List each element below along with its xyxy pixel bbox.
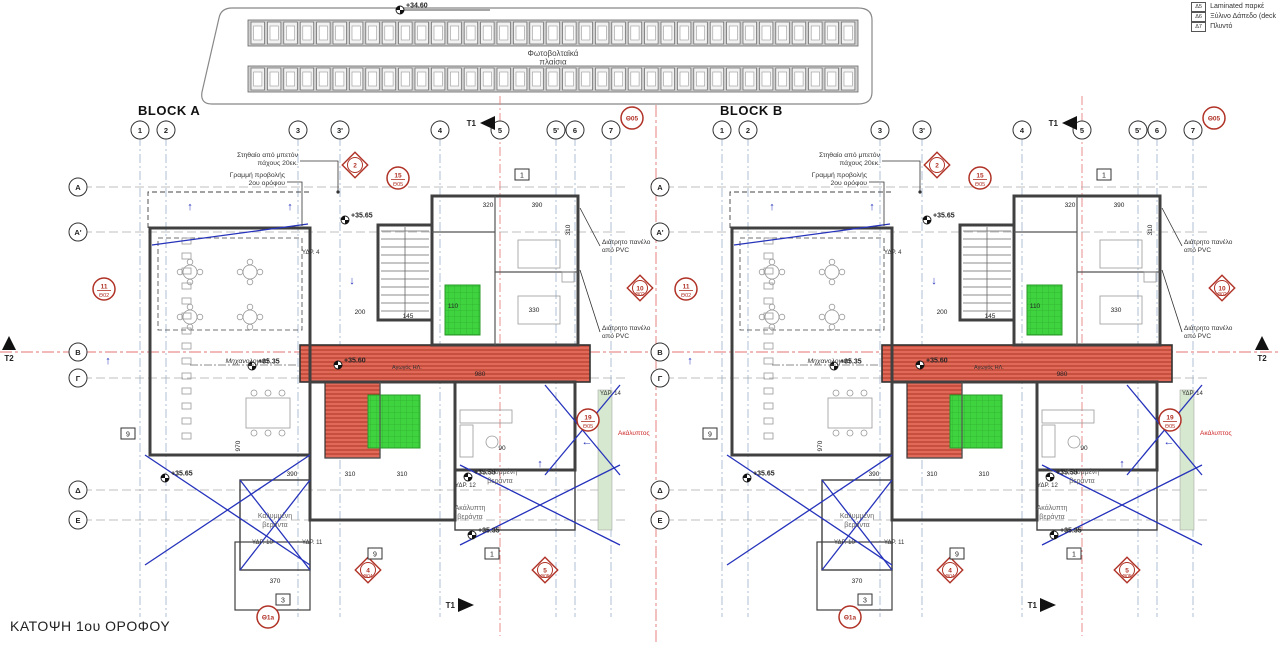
- svg-text:από PVC: από PVC: [1184, 246, 1211, 254]
- svg-text:Διάτρητο πανέλο: Διάτρητο πανέλο: [602, 238, 651, 246]
- section-marker-t2: T2: [2, 336, 16, 363]
- detail-marker: 19Θ05: [577, 409, 599, 431]
- drawing-title: ΚΑΤΟΨΗ 1ου ΟΡΟΦΟΥ: [10, 618, 170, 634]
- keynote-square: 1: [1097, 169, 1111, 180]
- svg-text:Στηθαίο από μπετόν: Στηθαίο από μπετόν: [819, 151, 881, 159]
- dimension-label: 320: [1065, 202, 1076, 209]
- grid-row-bubble: Γ: [69, 369, 87, 387]
- svg-text:5: 5: [1080, 126, 1084, 135]
- svg-text:Θ04: Θ04: [945, 574, 955, 580]
- grid-column-bubble: 4: [1013, 121, 1031, 139]
- svg-text:T1: T1: [1049, 119, 1059, 128]
- svg-text:←: ←: [582, 436, 593, 448]
- bathroom-upper: [1027, 285, 1062, 335]
- legend-code-box: Δ5: [1191, 2, 1206, 12]
- svg-text:1: 1: [490, 552, 494, 559]
- detail-marker: 11Θ02: [93, 278, 115, 300]
- grid-column-bubble: 6: [1148, 121, 1166, 139]
- dimension-label: 145: [403, 313, 414, 320]
- svg-text:3': 3': [919, 126, 925, 135]
- legend-code-box: Δ7: [1191, 22, 1206, 32]
- grid-row-bubble: Γ: [651, 369, 669, 387]
- svg-text:Θ02: Θ02: [635, 292, 645, 298]
- svg-text:Καλυμμένη: Καλυμμένη: [1065, 468, 1099, 476]
- svg-text:Μηχανολογικά: Μηχανολογικά: [225, 357, 269, 365]
- block-b: 1233'455'67AA'BΓΔE↑↑↑↑↓←15Θ05211Θ0210Θ02…: [651, 96, 1235, 636]
- dimension-label: 390: [287, 471, 298, 478]
- svg-text:3: 3: [878, 126, 882, 135]
- svg-text:βεράντα: βεράντα: [1039, 513, 1064, 521]
- dimension-label: 90: [1080, 445, 1088, 452]
- svg-text:+35.60: +35.60: [926, 358, 948, 365]
- svg-text:Θ1a: Θ1a: [262, 615, 275, 622]
- svg-text:Ακάλυπτος: Ακάλυπτος: [618, 429, 650, 437]
- svg-text:Θ04: Θ04: [363, 574, 373, 580]
- level-marker: +35.65: [341, 213, 373, 225]
- dimension-label: 330: [529, 307, 540, 314]
- svg-text:+34.60: +34.60: [406, 3, 428, 10]
- svg-text:3: 3: [863, 598, 867, 605]
- svg-text:+35.35: +35.35: [1060, 528, 1082, 535]
- svg-text:Δ: Δ: [657, 486, 663, 495]
- block-a-title: BLOCK A: [138, 103, 200, 118]
- legend-label: Πλυντό: [1210, 23, 1232, 30]
- bathroom-lower: [950, 395, 1002, 448]
- pv-array: Φωτοβολταϊκάπλαίσια+34.60: [202, 3, 872, 105]
- grid-row-bubble: E: [651, 511, 669, 529]
- svg-text:βεράντα: βεράντα: [487, 477, 512, 485]
- svg-text:7: 7: [609, 126, 613, 135]
- svg-text:Θ1a: Θ1a: [844, 615, 857, 622]
- dimension-label: 310: [345, 471, 356, 478]
- svg-text:7: 7: [1191, 126, 1195, 135]
- svg-text:3': 3': [337, 126, 343, 135]
- svg-text:Γ: Γ: [658, 374, 663, 383]
- grid-column-bubble: 7: [1184, 121, 1202, 139]
- detail-marker: Θ05: [621, 107, 643, 129]
- section-marker-t2: T2: [1255, 336, 1269, 363]
- plumbing-label: ΥΔΡ. 12: [455, 483, 476, 489]
- svg-text:T1: T1: [446, 601, 456, 610]
- svg-text:από PVC: από PVC: [602, 332, 629, 340]
- plumbing-label: ΥΔΡ. 14: [600, 391, 621, 397]
- detail-marker: 2: [924, 152, 949, 177]
- grid-column-bubble: 3': [913, 121, 931, 139]
- svg-text:5: 5: [498, 126, 502, 135]
- block-a: 1233'455'67AA'BΓΔE↑↑↑↑↓←15Θ05211Θ0210Θ02…: [69, 96, 653, 636]
- svg-text:↓: ↓: [349, 275, 355, 287]
- detail-marker: 19Θ05: [1159, 409, 1181, 431]
- legend-item: Δ6 Ξύλινο Δάπεδο (deck: [1191, 12, 1276, 21]
- svg-text:Δ: Δ: [75, 486, 81, 495]
- svg-text:3: 3: [281, 598, 285, 605]
- svg-text:↑: ↑: [769, 201, 775, 213]
- grid-column-bubble: 6: [566, 121, 584, 139]
- svg-text:1: 1: [1102, 173, 1106, 180]
- legend-code-box: Δ6: [1191, 12, 1206, 22]
- svg-text:1: 1: [138, 126, 142, 135]
- detail-marker: 10Θ02: [627, 275, 652, 300]
- grid-row-bubble: A': [69, 223, 87, 241]
- svg-text:Γραμμή προβολής: Γραμμή προβολής: [812, 172, 868, 179]
- grid-row-bubble: B: [651, 343, 669, 361]
- svg-text:2ου ορόφου: 2ου ορόφου: [831, 179, 868, 187]
- svg-text:1: 1: [520, 173, 524, 180]
- grid-row-bubble: A: [69, 178, 87, 196]
- keynote-square: 3: [276, 594, 290, 605]
- svg-text:11: 11: [101, 284, 108, 291]
- svg-text:από PVC: από PVC: [602, 246, 629, 254]
- svg-text:←: ←: [1164, 436, 1175, 448]
- keynote-square: 3: [858, 594, 872, 605]
- plumbing-label: ΥΔΡ. 10: [834, 540, 855, 546]
- svg-text:πάχους 20εκ.: πάχους 20εκ.: [840, 159, 881, 167]
- keynote-square: 9: [368, 548, 382, 559]
- svg-text:↑: ↑: [537, 458, 543, 470]
- svg-text:+35.35: +35.35: [478, 528, 500, 535]
- svg-text:19: 19: [584, 415, 592, 422]
- detail-marker: 10Θ02: [1209, 275, 1234, 300]
- svg-text:T1: T1: [467, 119, 477, 128]
- detail-marker: Θ1a: [257, 606, 279, 628]
- legend-item: Δ5 Laminated παρκέ: [1191, 2, 1276, 11]
- plumbing-label: ΥΔΡ. 14: [1182, 391, 1203, 397]
- svg-text:2: 2: [746, 126, 750, 135]
- plumbing-label: ΥΔΡ. 11: [302, 540, 323, 546]
- svg-text:+35.65: +35.65: [753, 471, 775, 478]
- svg-text:2: 2: [164, 126, 168, 135]
- dimension-label: 310: [1147, 224, 1154, 235]
- plumbing-label: ΥΔΡ. 10: [252, 540, 273, 546]
- dimension-label: 980: [475, 371, 486, 378]
- grid-row-bubble: B: [69, 343, 87, 361]
- dimension-label: 390: [869, 471, 880, 478]
- svg-text:πάχους 20εκ.: πάχους 20εκ.: [258, 159, 299, 167]
- bathroom-lower: [368, 395, 420, 448]
- annotations: Στηθαίο από μπετόνπάχους 20εκ.Γραμμή προ…: [190, 151, 651, 529]
- dimension-label: 90: [498, 445, 506, 452]
- svg-text:9: 9: [126, 432, 130, 439]
- block-b-title: BLOCK B: [720, 103, 783, 118]
- svg-text:+35.65: +35.65: [933, 213, 955, 220]
- detail-marker: 11Θ02: [675, 278, 697, 300]
- plumbing-label: ΥΔΡ. 11: [884, 540, 905, 546]
- grid-column-bubble: 3: [289, 121, 307, 139]
- svg-text:+35.60: +35.60: [344, 358, 366, 365]
- dimension-label: 970: [817, 440, 824, 451]
- svg-text:Διάτρητο πανέλο: Διάτρητο πανέλο: [1184, 238, 1233, 246]
- svg-text:↑: ↑: [287, 201, 293, 213]
- svg-text:A: A: [75, 183, 81, 192]
- section-marker-t1: T1: [1028, 598, 1056, 612]
- svg-text:βεράντα: βεράντα: [1069, 477, 1094, 485]
- svg-text:6: 6: [1155, 126, 1159, 135]
- keynote-square: 1: [515, 169, 529, 180]
- detail-marker: 5Θ05: [532, 557, 557, 582]
- dimension-label: 370: [852, 578, 863, 585]
- svg-text:15: 15: [394, 173, 402, 180]
- svg-text:3: 3: [296, 126, 300, 135]
- svg-text:βεράντα: βεράντα: [844, 521, 869, 529]
- grid-column-bubble: 2: [157, 121, 175, 139]
- detail-marker: 2: [342, 152, 367, 177]
- grid-row-bubble: A': [651, 223, 669, 241]
- detail-marker: 5Θ05: [1114, 557, 1139, 582]
- svg-text:T1: T1: [1028, 601, 1038, 610]
- keynote-square: 9: [121, 428, 135, 439]
- detail-marker: 15Θ05: [969, 167, 991, 189]
- svg-text:Θ05: Θ05: [1165, 424, 1175, 430]
- svg-text:T2: T2: [4, 354, 14, 363]
- plumbing-label: ΥΔΡ. 4: [884, 250, 902, 256]
- svg-text:5': 5': [553, 126, 559, 135]
- dimension-label: 310: [979, 471, 990, 478]
- keynote-square: 1: [1067, 548, 1081, 559]
- staircase: [963, 227, 1011, 319]
- detail-marker: 4Θ04: [937, 557, 962, 582]
- svg-text:↑: ↑: [687, 355, 693, 367]
- dimension-label: 310: [927, 471, 938, 478]
- materials-legend: Δ5 Laminated παρκέ Δ6 Ξύλινο Δάπεδο (dec…: [1191, 2, 1276, 31]
- level-marker: +35.65: [923, 213, 955, 225]
- section-marker-t1: T1: [467, 116, 495, 130]
- plumbing-label: ΥΔΡ. 4: [302, 250, 320, 256]
- svg-text:6: 6: [573, 126, 577, 135]
- svg-text:A: A: [657, 183, 663, 192]
- dimension-label: 370: [270, 578, 281, 585]
- svg-text:Θ02: Θ02: [1217, 292, 1227, 298]
- svg-text:Στηθαίο από μπετόν: Στηθαίο από μπετόν: [237, 151, 299, 159]
- svg-text:Θ05: Θ05: [975, 182, 985, 188]
- svg-text:5': 5': [1135, 126, 1141, 135]
- svg-text:πλαίσια: πλαίσια: [539, 58, 567, 67]
- svg-text:2ου ορόφου: 2ου ορόφου: [249, 179, 286, 187]
- dimension-label: 980: [1057, 371, 1068, 378]
- grid-row-bubble: A: [651, 178, 669, 196]
- bathroom-upper: [445, 285, 480, 335]
- grid-column-bubble: 3: [871, 121, 889, 139]
- svg-text:+35.65: +35.65: [171, 471, 193, 478]
- svg-text:από PVC: από PVC: [1184, 332, 1211, 340]
- svg-text:2: 2: [935, 163, 939, 170]
- dimension-label: 310: [397, 471, 408, 478]
- dimension-label: 200: [355, 309, 366, 316]
- svg-text:↓: ↓: [931, 275, 937, 287]
- svg-text:Μηχανολογικά: Μηχανολογικά: [807, 357, 851, 365]
- svg-text:Διάτρητο πανέλο: Διάτρητο πανέλο: [1184, 324, 1233, 332]
- level-marker: +35.35: [468, 528, 500, 540]
- grid-column-bubble: 5': [547, 121, 565, 139]
- svg-text:11: 11: [683, 284, 690, 291]
- svg-text:1: 1: [720, 126, 724, 135]
- dimension-label: 200: [937, 309, 948, 316]
- dimension-label: 390: [532, 202, 543, 209]
- level-marker: +35.35: [1050, 528, 1082, 540]
- svg-text:A': A': [74, 228, 81, 237]
- plumbing-label: ΥΔΡ. 12: [1037, 483, 1058, 489]
- svg-text:A': A': [656, 228, 663, 237]
- keynote-square: 1: [485, 548, 499, 559]
- svg-text:Διάτρητο πανέλο: Διάτρητο πανέλο: [602, 324, 651, 332]
- svg-text:↑: ↑: [869, 201, 875, 213]
- floor-plan-drawing: Φωτοβολταϊκάπλαίσια+34.60T2T21233'455'67…: [0, 0, 1280, 648]
- grid-column-bubble: 5': [1129, 121, 1147, 139]
- legend-label: Laminated παρκέ: [1210, 3, 1264, 10]
- legend-label: Ξύλινο Δάπεδο (deck: [1210, 13, 1276, 20]
- detail-marker: Θ1a: [839, 606, 861, 628]
- staircase: [381, 227, 429, 319]
- svg-text:9: 9: [708, 432, 712, 439]
- grid-column-bubble: 1: [713, 121, 731, 139]
- dimension-label: 310: [565, 224, 572, 235]
- svg-text:+35.65: +35.65: [351, 213, 373, 220]
- svg-text:E: E: [657, 516, 662, 525]
- grid-column-bubble: 3': [331, 121, 349, 139]
- detail-marker: 4Θ04: [355, 557, 380, 582]
- svg-text:Ακάλυπτη: Ακάλυπτη: [1037, 504, 1068, 512]
- svg-text:E: E: [75, 516, 80, 525]
- svg-text:Αγωγός ΗΛ.: Αγωγός ΗΛ.: [392, 364, 422, 371]
- svg-text:βεράντα: βεράντα: [262, 521, 287, 529]
- section-marker-t1: T1: [446, 598, 474, 612]
- dimension-label: 330: [1111, 307, 1122, 314]
- keynote-square: 9: [703, 428, 717, 439]
- grid-row-bubble: Δ: [651, 481, 669, 499]
- svg-text:Γ: Γ: [76, 374, 81, 383]
- section-marker-t1: T1: [1049, 116, 1077, 130]
- svg-text:Θ05: Θ05: [1208, 116, 1221, 123]
- svg-text:↑: ↑: [1119, 458, 1125, 470]
- svg-text:↑: ↑: [187, 201, 193, 213]
- svg-text:9: 9: [373, 552, 377, 559]
- dimension-label: 145: [985, 313, 996, 320]
- dimension-label: 110: [448, 303, 459, 310]
- svg-text:2: 2: [353, 163, 357, 170]
- legend-item: Δ7 Πλυντό: [1191, 22, 1276, 31]
- svg-text:Θ05: Θ05: [626, 116, 639, 123]
- dimension-label: 320: [483, 202, 494, 209]
- grid-column-bubble: 7: [602, 121, 620, 139]
- grid-row-bubble: Δ: [69, 481, 87, 499]
- svg-text:9: 9: [955, 552, 959, 559]
- svg-text:Αγωγός ΗΛ.: Αγωγός ΗΛ.: [974, 364, 1004, 371]
- svg-text:Καλυμμένη: Καλυμμένη: [483, 468, 517, 476]
- annotations: Στηθαίο από μπετόνπάχους 20εκ.Γραμμή προ…: [772, 151, 1233, 529]
- svg-text:Θ05: Θ05: [393, 182, 403, 188]
- svg-text:1: 1: [1072, 552, 1076, 559]
- detail-marker: Θ05: [1203, 107, 1225, 129]
- svg-text:↑: ↑: [105, 355, 111, 367]
- grid-row-bubble: E: [69, 511, 87, 529]
- svg-text:19: 19: [1166, 415, 1174, 422]
- planter-strip: [598, 390, 612, 530]
- grid-column-bubble: 2: [739, 121, 757, 139]
- keynote-square: 9: [950, 548, 964, 559]
- svg-text:Θ02: Θ02: [681, 293, 691, 299]
- svg-text:Ακάλυπτη: Ακάλυπτη: [455, 504, 486, 512]
- svg-text:Θ05: Θ05: [1122, 574, 1132, 580]
- svg-text:Καλυμμένη: Καλυμμένη: [258, 512, 292, 520]
- dimension-label: 390: [1114, 202, 1125, 209]
- grid-column-bubble: 1: [131, 121, 149, 139]
- svg-text:βεράντα: βεράντα: [457, 513, 482, 521]
- svg-text:Καλυμμένη: Καλυμμένη: [840, 512, 874, 520]
- svg-text:T2: T2: [1257, 354, 1267, 363]
- planter-strip: [1180, 390, 1194, 530]
- svg-text:Θ05: Θ05: [583, 424, 593, 430]
- svg-text:Θ05: Θ05: [540, 574, 550, 580]
- svg-text:B: B: [657, 348, 663, 357]
- detail-marker: 15Θ05: [387, 167, 409, 189]
- svg-text:Γραμμή προβολής: Γραμμή προβολής: [230, 172, 286, 179]
- grid-column-bubble: 4: [431, 121, 449, 139]
- svg-text:15: 15: [976, 173, 984, 180]
- dimension-label: 970: [235, 440, 242, 451]
- svg-text:Θ02: Θ02: [99, 293, 109, 299]
- svg-text:Ακάλυπτος: Ακάλυπτος: [1200, 429, 1232, 437]
- dimension-label: 110: [1030, 303, 1041, 310]
- svg-text:B: B: [75, 348, 81, 357]
